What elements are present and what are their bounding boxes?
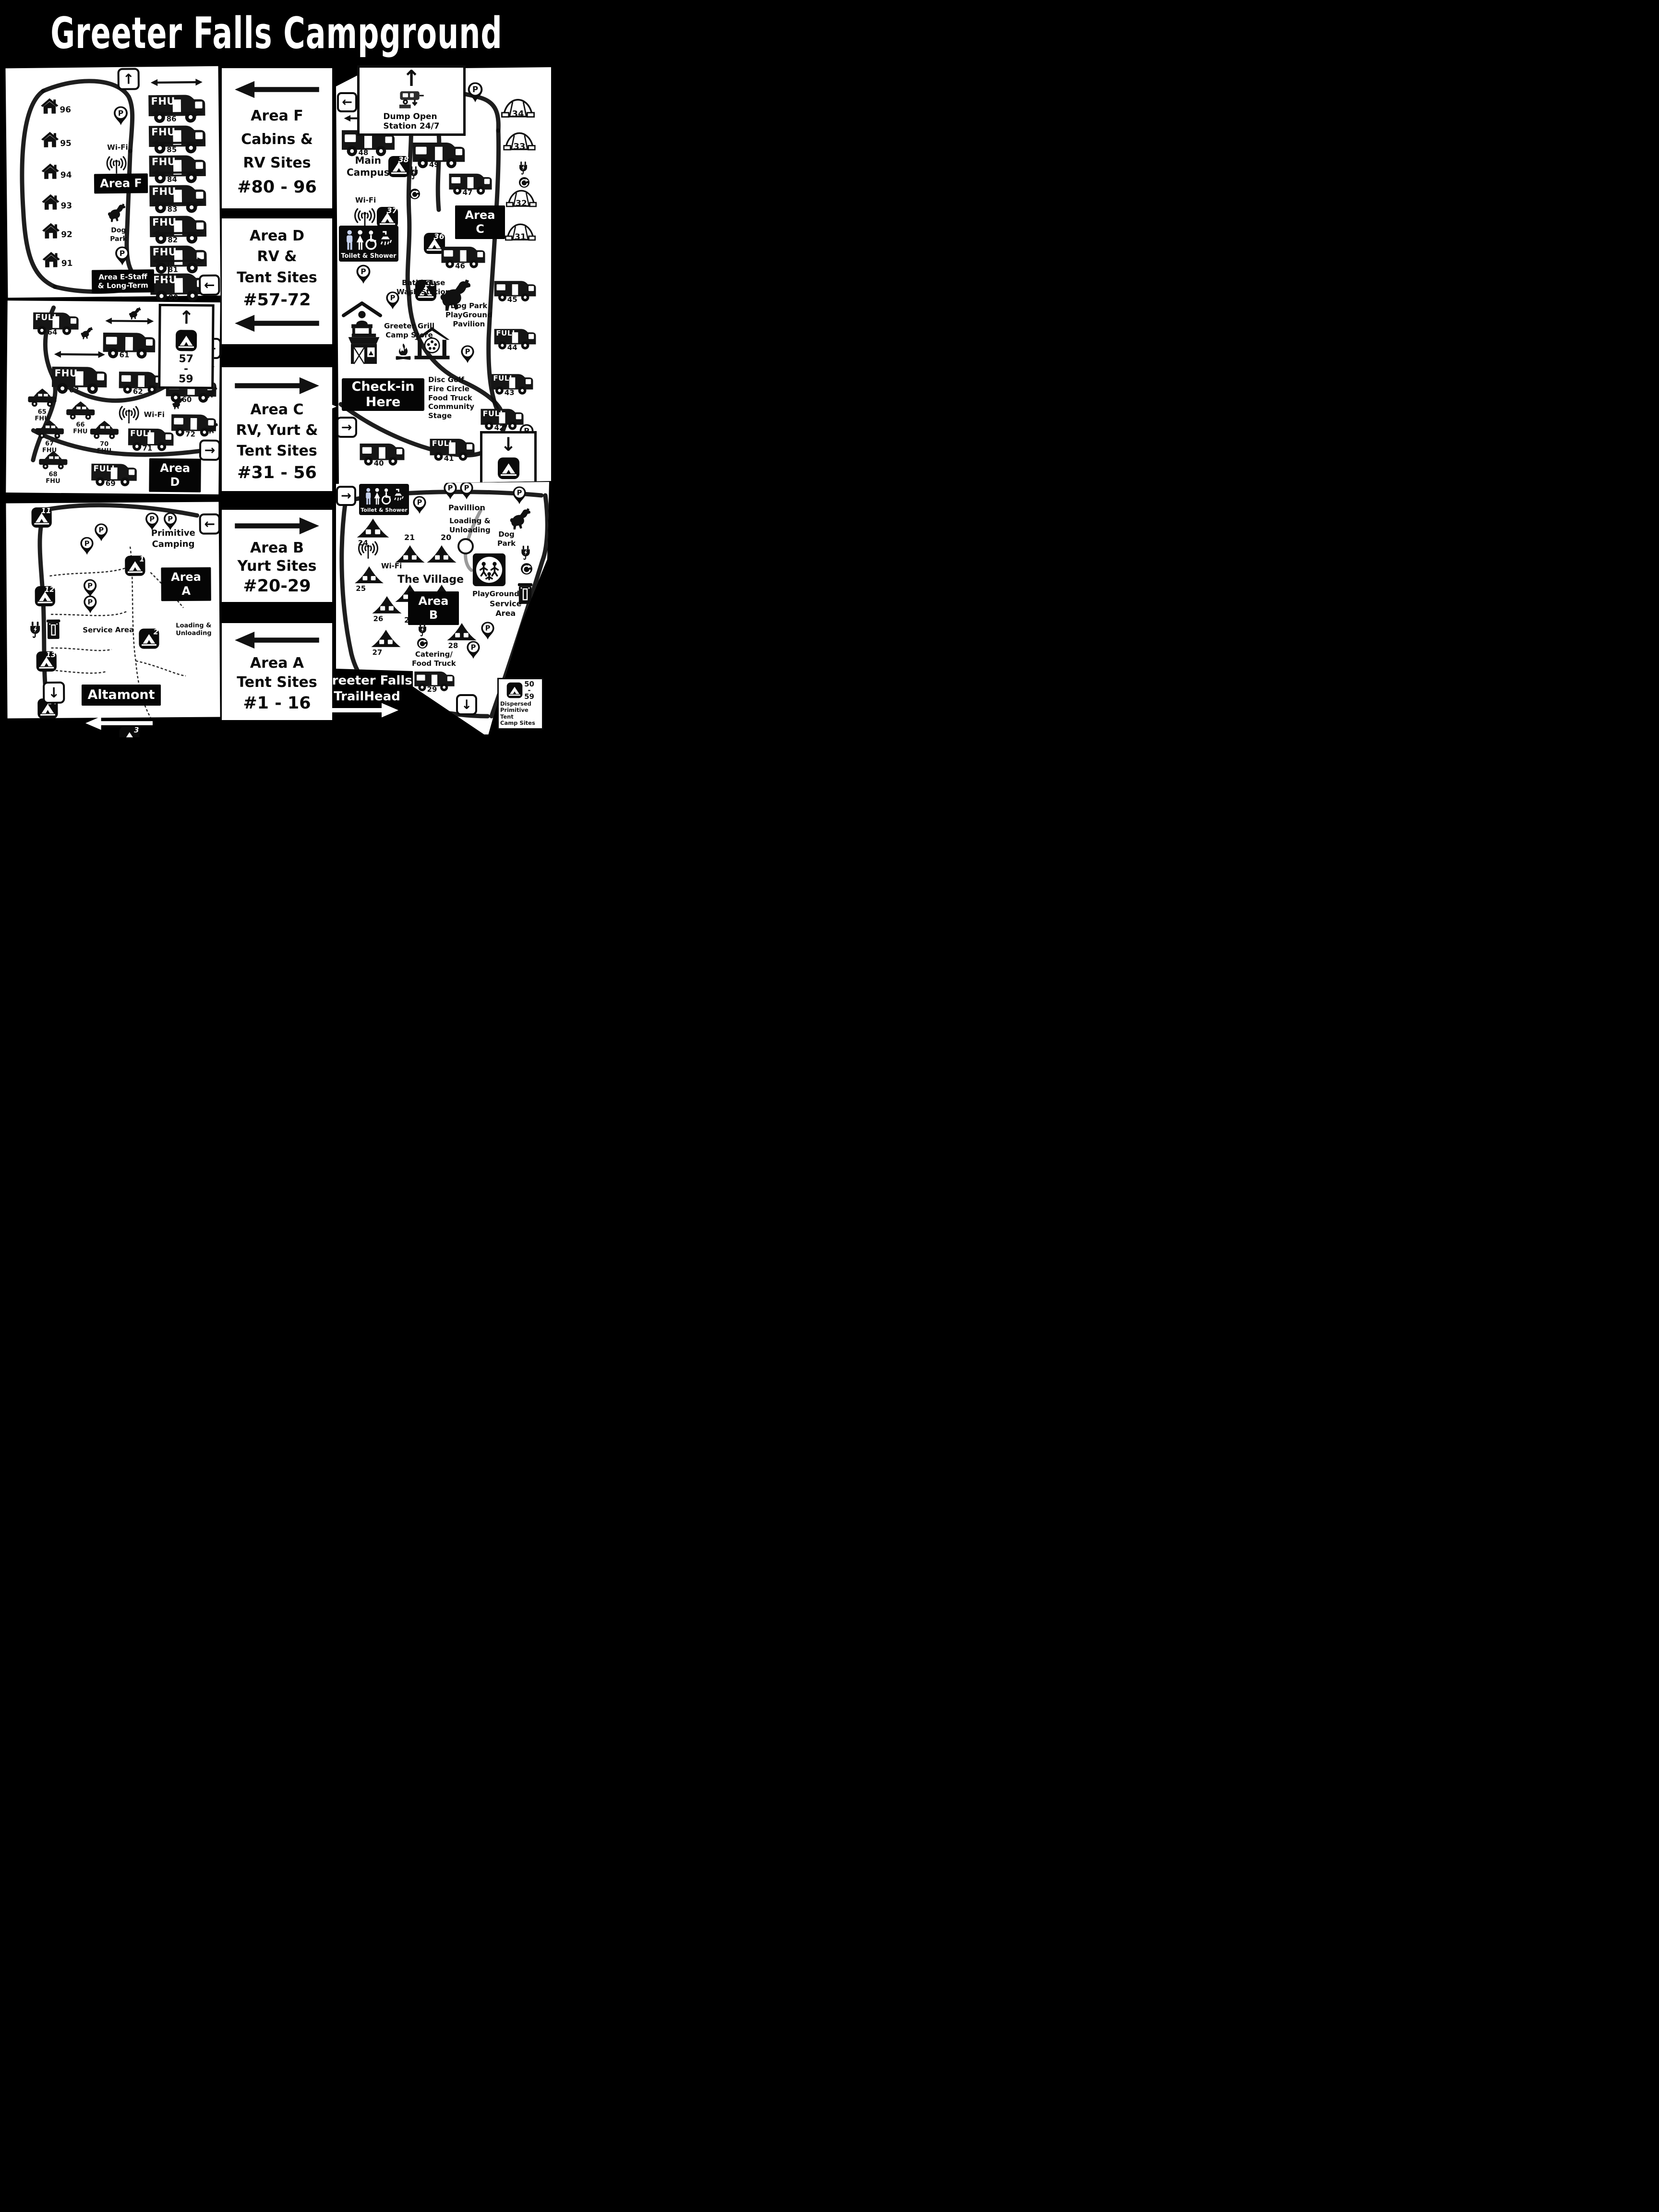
car-tent-site-65: 65FHU — [27, 388, 58, 422]
turnaround-circle — [457, 538, 474, 555]
parking-pin-icon — [460, 345, 475, 364]
sites-57-59-gate-sign: ↑57-59 — [158, 304, 215, 389]
check-in-desk-icon — [341, 301, 383, 337]
yurt-site-32: 32 — [506, 188, 537, 209]
toilet-shower-sign: Toilet & Shower — [339, 226, 398, 262]
rv-site-full-41: FULL41 — [429, 433, 475, 462]
cabin-site-92: 92 — [42, 222, 72, 240]
length-arrow-icon — [150, 78, 203, 87]
parking-pin-icon — [94, 523, 109, 542]
yurt-site-25: 25 — [353, 565, 385, 592]
parking-pin-icon — [480, 621, 495, 640]
cabin-site-93: 93 — [41, 193, 72, 211]
label-dog-park: DogPark — [497, 530, 516, 548]
cabin-site-96: 96 — [40, 97, 71, 115]
yurt-tent — [394, 543, 426, 564]
cabin-site-95: 95 — [41, 131, 72, 148]
length-arrow-icon — [150, 108, 203, 118]
legend-sign-area-c: Area CRV, Yurt &Tent Sites#31 - 56 — [222, 367, 332, 491]
toilet-shower-sign: Toilet & Shower — [359, 484, 409, 515]
area-sign-area-b: Area B — [408, 591, 459, 625]
label-the-village: The Village — [397, 573, 464, 587]
altamont-sign: Altamont — [82, 685, 161, 706]
parking-pin-icon — [459, 481, 474, 500]
label-catering-food-truck: Catering/Food Truck — [412, 650, 456, 668]
direction-arrow-left — [235, 630, 319, 652]
direction-arrow-left — [235, 313, 319, 335]
yurt-tent — [425, 543, 458, 564]
parking-pin-icon — [114, 246, 130, 266]
legend-sign-area-d: Area DRV &Tent Sites#57-72 — [222, 218, 332, 344]
tent-site-1: 1 — [124, 555, 145, 577]
trailhead-arrow — [326, 702, 398, 719]
wifi-icon — [118, 403, 140, 424]
campfire-icon — [394, 343, 413, 363]
parking-pin-icon — [412, 495, 427, 515]
area-sign-area-e-staff-long-term: Area E-Staff& Long-Term — [92, 269, 154, 293]
wifi-icon — [353, 205, 376, 227]
trailhead-label: Greeter FallsTrailHead — [323, 673, 411, 704]
tent-site-13: 13 — [36, 651, 57, 672]
electric-hookup-icon — [28, 621, 42, 639]
playground-icon — [472, 553, 506, 587]
label-service-area: ServiceArea — [490, 599, 522, 618]
length-arrow-icon — [152, 228, 204, 238]
yurt-site-27: 27 — [370, 628, 402, 656]
exit-right-icon: → — [199, 440, 220, 461]
legend-sign-area-f: Area FCabins &RV Sites#80 - 96 — [222, 68, 332, 208]
label-primitive-camping: PrimitiveCamping — [151, 528, 195, 550]
electric-hookup-icon — [517, 161, 529, 176]
length-arrow-icon — [151, 168, 204, 177]
parking-pin-icon — [112, 106, 129, 126]
rv-site-46: 46 — [441, 241, 486, 269]
label-dog-park-playground-pavilion: Dog ParkPlayGroundPavilion — [445, 301, 493, 328]
rv-site-40: 40 — [359, 438, 405, 467]
dump-station-sign: ↑Dump OpenStation 24/7 — [357, 65, 466, 136]
label-disc-golf-fire-circle-food-truck-community-stage: Disc GolfFire CircleFood TruckCommunityS… — [428, 375, 474, 421]
utility-hookup-icon — [417, 637, 428, 649]
campground-map: P — [0, 0, 553, 737]
parking-pin-icon — [443, 481, 458, 500]
legend-sign-area-a: Area ATent Sites#1 - 16 — [222, 623, 332, 720]
car-tent-site-67: 67FHU — [34, 420, 65, 454]
rv-site-full-64: FULL64 — [32, 307, 80, 337]
length-arrow-icon — [105, 317, 154, 325]
rv-site-45: 45 — [493, 276, 537, 302]
parking-pin-icon — [83, 595, 98, 614]
label-dog-park: DogPark — [110, 227, 127, 243]
rv-site-full-71: FULL71 — [127, 422, 175, 452]
label-pavillion: Pavillion — [448, 503, 485, 513]
parking-pin-icon — [79, 536, 95, 555]
yurt-site-34: 34 — [501, 97, 535, 120]
dog-park-icon — [80, 326, 96, 340]
yurt-site-31: 31 — [505, 222, 536, 243]
wifi-icon — [357, 539, 379, 559]
label-playground: PlayGround — [472, 589, 519, 599]
car-tent-site-68: 68FHU — [37, 451, 69, 485]
camp-store-icon — [347, 333, 381, 364]
dog-park-icon — [207, 422, 220, 434]
direction-arrow-right — [235, 376, 319, 397]
electric-hookup-icon — [519, 545, 532, 561]
exit-left-icon: ← — [337, 92, 357, 112]
electric-hookup-icon — [408, 166, 420, 180]
length-arrow-icon — [54, 350, 105, 359]
panel-area-f: ↑FHU86FHU85FHU84FHU83FHU82FHU81FHU809695… — [6, 66, 221, 298]
rv-site-29: 29 — [414, 666, 455, 692]
pavilion-icon — [413, 325, 451, 361]
cabin-site-94: 94 — [41, 163, 72, 180]
utility-hookup-icon — [409, 188, 421, 200]
rv-site-full-69: FULL69 — [90, 458, 138, 488]
exit-down-icon: ↓ — [456, 694, 477, 715]
dispersed-sites-sign: 50-59DispersedPrimitive TentCamp Sites — [497, 678, 543, 730]
length-arrow-icon — [151, 138, 204, 147]
map-title: Greeter Falls Campground — [0, 8, 553, 59]
rv-site-62: 62 — [118, 366, 165, 395]
check-in-arrow — [307, 403, 337, 410]
tent-site-38: 38 — [388, 156, 410, 178]
wifi-icon — [105, 154, 127, 174]
parking-pin-icon — [467, 82, 484, 103]
legend-sign-area-b: Area BYurt Sites#20-29 — [222, 510, 332, 602]
tent-site-2: 2 — [138, 628, 159, 649]
tent-site-11: 11 — [31, 507, 52, 528]
rv-site-full-43: FULL43 — [491, 369, 534, 396]
exit-left-icon: ← — [199, 513, 220, 534]
rv-site-full-44: FULL44 — [493, 324, 537, 350]
car-tent-site-70: 70FHU — [89, 421, 120, 455]
area-sign-area-f: Area F — [94, 173, 148, 193]
area-sign-area-c: Area C — [455, 205, 505, 239]
direction-arrow-left — [235, 80, 319, 101]
tent-site-12: 12 — [35, 586, 56, 607]
label-wi-fi: Wi-Fi — [355, 196, 376, 205]
parking-pin-icon — [355, 264, 372, 285]
parking-pin-icon — [512, 486, 527, 505]
area-sign-area-a: Area A — [161, 567, 211, 601]
label-loading-unloading: Loading &Unloading — [449, 517, 491, 535]
rv-site-full-42: FULL42 — [480, 403, 524, 431]
length-arrow-icon — [151, 199, 204, 208]
rv-site-61: 61 — [102, 317, 156, 360]
exit-right-icon: → — [336, 417, 357, 438]
electric-hookup-icon — [417, 623, 428, 637]
portable-toilet-icon — [46, 619, 60, 639]
rv-site-47: 47 — [448, 168, 493, 196]
yurt-site-33: 33 — [503, 131, 536, 153]
label-21: 21 — [404, 533, 415, 542]
length-arrow-icon — [152, 256, 205, 265]
panel-area-d: FULL6461↑57-59←FHU63626065FHU66FHUWi-Fi7… — [6, 301, 220, 494]
exit-down-icon: ↓ — [43, 682, 65, 704]
direction-arrow-right — [235, 516, 319, 538]
altamont-arrow — [85, 715, 153, 731]
dog-park-icon — [509, 507, 536, 531]
utility-hookup-icon — [518, 177, 530, 188]
cabin-site-91: 91 — [42, 251, 73, 268]
label-loading-unloading: Loading &Unloading — [176, 622, 212, 638]
yurt-site-26: 26 — [371, 594, 403, 623]
label-20: 20 — [441, 533, 451, 542]
label-wi-fi: Wi-Fi — [107, 143, 128, 152]
parking-pin-icon — [385, 291, 400, 310]
label-wi-fi: Wi-Fi — [144, 410, 165, 420]
exit-left-icon: ← — [199, 275, 220, 296]
exit-up-icon: ↑ — [118, 68, 140, 90]
check-in-sign: Check-inHere — [342, 378, 424, 411]
utility-hookup-icon — [520, 563, 533, 575]
area-sign-area-d: Area D — [149, 458, 201, 493]
dog-park-icon — [107, 203, 130, 224]
parking-pin-icon — [466, 640, 481, 660]
label-service-area: Service Area — [83, 625, 134, 635]
exit-right-icon: → — [336, 486, 356, 506]
label-main-campus: MainCampus — [347, 155, 389, 179]
staff-area-arrow — [158, 270, 179, 275]
rv-site-fhu-63: FHU63 — [51, 350, 108, 396]
